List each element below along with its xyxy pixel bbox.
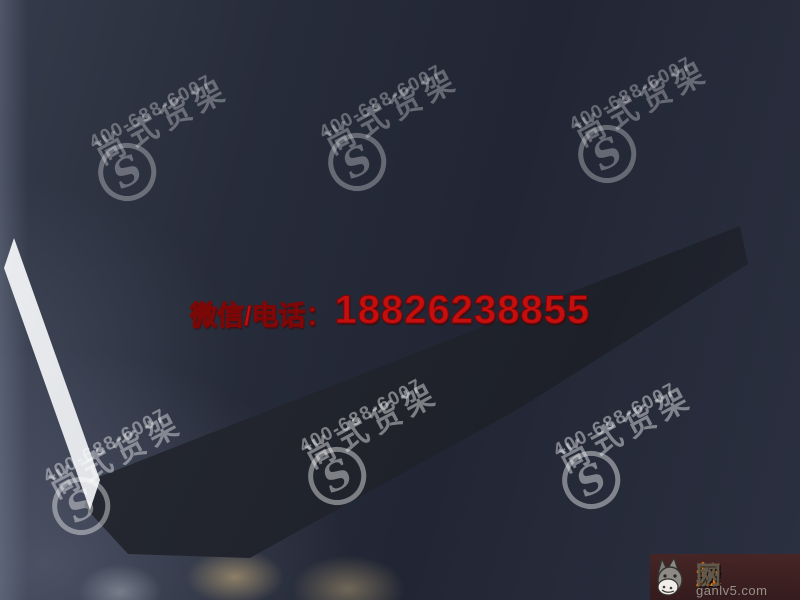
fixture-gondola [456, 113, 526, 147]
fixture-gondola [436, 184, 510, 220]
site-domain: ganlv5.com [696, 583, 794, 598]
pendant-lamp [57, 229, 67, 238]
fixture-gondola [516, 151, 592, 187]
fixture-gondola [381, 144, 450, 178]
store-logo-glyph [60, 225, 67, 231]
floor-light-glow [79, 312, 181, 378]
wall-sign-green [578, 112, 611, 133]
watermark-logo-icon: S [568, 115, 646, 193]
fixture-gondola [408, 229, 483, 266]
corner-green-cabinet [491, 35, 533, 63]
contact-banner: 微信/电话：18826238855 [190, 287, 590, 333]
fixture-gondola [489, 196, 566, 234]
fixture-plant [139, 263, 154, 275]
fixture-white-kiosk [251, 215, 287, 243]
floor-light-glow [96, 244, 194, 306]
pendant-lamp [39, 239, 49, 248]
fixture-showcase [116, 217, 179, 267]
store-render-scene: 微信/电话：18826238855 赶驴网 ganlv5.com S尚式货架40… [0, 0, 800, 600]
fixture-wood-light [450, 234, 562, 290]
fixture-gondola [292, 152, 357, 185]
floor-light-glow [306, 196, 417, 260]
fixture-shelf-east [539, 119, 606, 166]
register-monitor [40, 250, 48, 256]
wall-sign-green [125, 192, 145, 209]
donkey-mascot-icon [653, 557, 693, 597]
fixture-wood [73, 263, 137, 315]
wall-sign-green [432, 63, 457, 79]
wall-sign-green [237, 145, 259, 162]
wall-sign-green [353, 96, 376, 113]
fixture-slat [182, 215, 254, 269]
fixture-wood [172, 171, 242, 222]
floor-light-glow [264, 152, 367, 211]
watermark-hotline-text: 400-688-6007 [316, 61, 447, 144]
register-monitor [71, 237, 79, 243]
fixture-plant [190, 183, 207, 196]
fixture-shelf-east [590, 168, 657, 215]
fixture-shelf-east [491, 72, 552, 115]
floor-light-glow [446, 121, 561, 183]
fixture-gondola [408, 163, 479, 198]
fixture-gondola [485, 131, 558, 166]
register-monitor [87, 230, 95, 236]
watermark-brand-text: 尚式货架 [550, 373, 701, 481]
floor-light-glow [389, 102, 498, 161]
contact-phone-number: 18826238855 [335, 288, 591, 333]
storefront-wall-trim [14, 238, 105, 482]
fixture-gondola [332, 195, 402, 230]
fixture-gondola [358, 216, 430, 252]
back-wall-top-edge [14, 30, 520, 244]
fixture-plant [148, 194, 169, 210]
watermark-brand-text: 尚式货架 [86, 65, 237, 173]
right-wall-shelving-boxes [500, 33, 708, 216]
right-wall-shelving-wood [492, 37, 698, 221]
watermark-logo-icon: S [318, 123, 396, 201]
checkout-counter [31, 224, 108, 267]
fixture-wood-dark [82, 310, 144, 366]
pendant-lamp [76, 220, 86, 229]
ganlv-corner-badge: 赶驴网 ganlv5.com [650, 554, 800, 600]
back-wall-shelving-boxes [15, 33, 524, 249]
contact-label: 微信/电话： [190, 294, 333, 333]
watermark-logo-icon: S [88, 133, 166, 211]
watermark-logo-icon: S [552, 441, 630, 519]
right-wall-top-edge [509, 30, 720, 214]
entrance-logo-wall [22, 207, 106, 253]
watermark-hotline-text: 400-688-6007 [86, 71, 217, 154]
floor-light-glow [357, 143, 467, 204]
watermark-hotline-text: 400-688-6007 [566, 53, 697, 136]
store-name-strip [72, 216, 92, 226]
fixture-gondola [307, 175, 374, 209]
store-logo-sign [57, 222, 70, 233]
watermark-hotline-text: 400-688-6007 [550, 379, 681, 462]
register-monitor [55, 243, 63, 249]
fixture-gondola [364, 122, 431, 155]
fixture-gondola [437, 92, 505, 125]
watermark-brand-text: 尚式货架 [316, 55, 467, 163]
floor-light-glow [417, 219, 539, 288]
back-wall-shelving-wood [17, 38, 530, 256]
watermark-brand-text: 尚式货架 [566, 47, 717, 155]
